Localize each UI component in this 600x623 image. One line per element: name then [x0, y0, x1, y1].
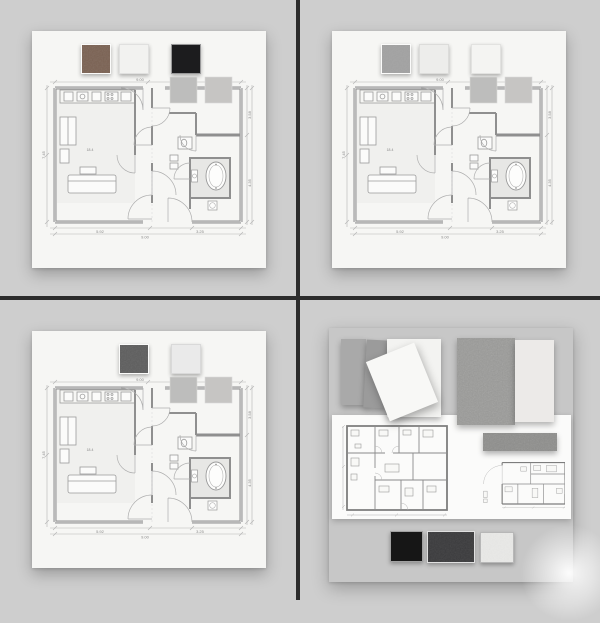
swatch-light-gray-matte	[419, 44, 449, 74]
textile-texture	[120, 345, 148, 373]
plans-sheet	[332, 415, 571, 519]
swatch-black-matte	[171, 44, 201, 74]
swatch-black-laminate	[390, 531, 423, 562]
swatch-white-matte	[471, 44, 501, 74]
concrete-texture	[483, 433, 557, 451]
moodboard-top-right	[332, 31, 566, 268]
laminate-texture	[428, 532, 474, 562]
concrete-texture	[457, 338, 515, 425]
plaster-panel	[515, 340, 554, 422]
floor-plan-right	[465, 458, 565, 510]
concrete-panel	[457, 338, 515, 425]
lens-flare	[519, 523, 600, 623]
swatch-white-matte	[119, 44, 149, 74]
moodboard-top-left	[32, 31, 266, 268]
floor-plan-drawing	[340, 75, 558, 239]
floor-plan-drawing	[40, 75, 258, 239]
panel-top-right	[300, 0, 600, 300]
swatch-off-white-matte	[171, 344, 201, 374]
material-board	[329, 328, 573, 582]
gray-panel	[341, 339, 366, 405]
panel-bottom-left	[0, 300, 300, 600]
swatch-gray-textile	[381, 44, 411, 74]
floor-plan-drawing	[40, 375, 258, 539]
concrete-strip	[483, 433, 557, 451]
panel-bottom-right	[300, 300, 600, 600]
textile-texture	[382, 45, 410, 73]
swatch-brown-leather	[81, 44, 111, 74]
floor-plan-left	[341, 418, 453, 518]
swatch-speckled-white-laminate	[480, 532, 514, 563]
leather-texture	[82, 45, 110, 73]
panel-top-left	[0, 0, 300, 300]
swatch-charcoal-laminate	[427, 531, 475, 563]
laminate-texture	[481, 533, 513, 562]
divider-horizontal-line	[0, 296, 600, 300]
divider-vertical-line	[296, 0, 300, 600]
moodboard-bottom-left	[32, 331, 266, 568]
swatch-charcoal-textile	[119, 344, 149, 374]
collage-canvas	[0, 0, 600, 600]
